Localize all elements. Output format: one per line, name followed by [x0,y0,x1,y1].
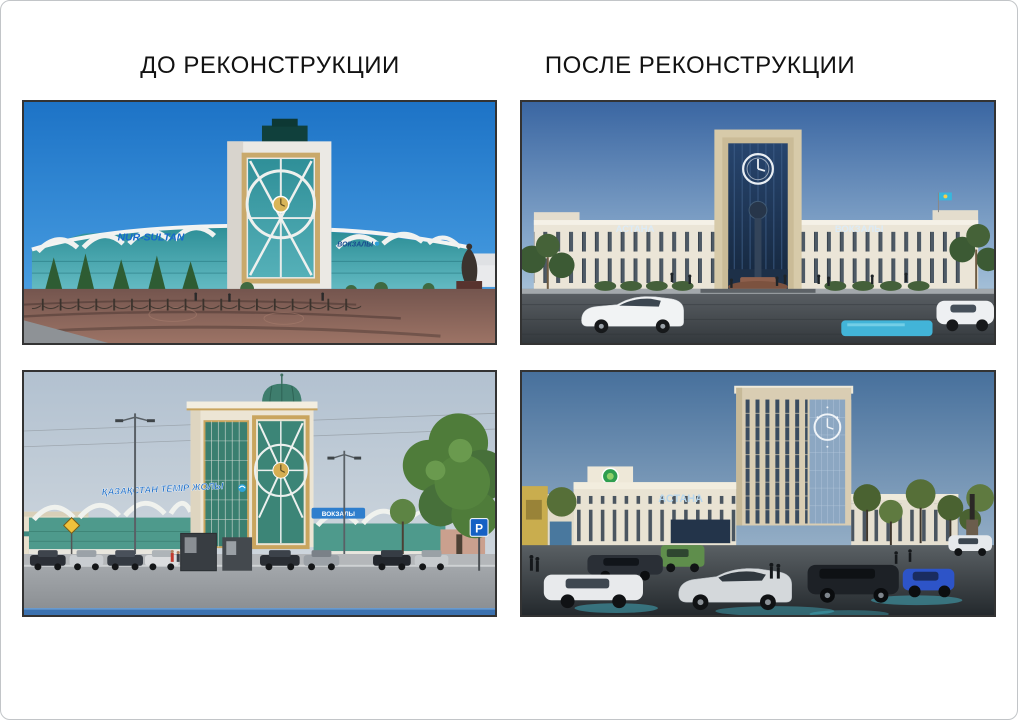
right-wing [331,230,470,289]
station-render-astana-after: АСТАНА ВОКЗАЛЫ [522,102,994,343]
right-sign-band: ВОКЗАЛЫ [312,508,366,519]
sign-nur-sultan: NUR-SULTAN [118,233,185,244]
photo-after-bottom: АСТАНА [520,370,996,617]
clock-tower [227,119,331,289]
sign-vokzaly: ВОКЗАЛЫ [835,224,884,234]
clock-icon [273,196,289,212]
sign-vokzaly: ВОКЗАЛЫ [337,242,374,249]
station-render-astana1-after: АСТАНА [522,372,994,615]
photo-after-top: АСТАНА ВОКЗАЛЫ [520,100,996,345]
sign-astana: АСТАНА [616,224,655,234]
plaza [24,289,495,343]
blue-railing-top [24,608,495,609]
sign-vokzaly: ВОКЗАЛЫ [322,511,355,518]
photo-before-bottom: ҚАЗАҚСТАН ТЕМІР ЖОЛЫ ВОКЗАЛЫ [22,370,497,617]
kiosks [181,533,252,570]
sign-astana: АСТАНА [658,493,703,505]
photo-before-top: NUR-SULTAN ВОКЗАЛЫ [22,100,497,345]
svg-text:P: P [475,521,483,535]
fountain-pool [841,320,932,336]
station-photo-nursultan-before: NUR-SULTAN ВОКЗАЛЫ [24,102,495,343]
station-photo-ktz-before: ҚАЗАҚСТАН ТЕМІР ЖОЛЫ ВОКЗАЛЫ [24,372,495,615]
clock-icon [273,463,289,479]
column-header-after: ПОСЛЕ РЕКОНСТРУКЦИИ [536,50,864,82]
bird-logo-icon [375,241,379,245]
column-header-before: ДО РЕКОНСТРУКЦИИ [118,50,422,82]
tower [734,386,853,526]
green-logo-icon [602,468,618,484]
